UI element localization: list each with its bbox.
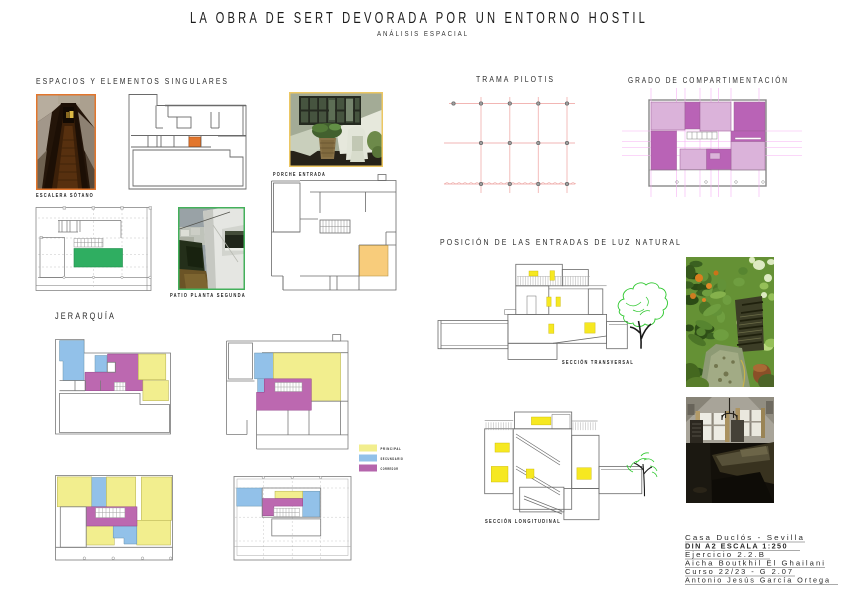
svg-text:CORREDOR: CORREDOR <box>381 466 399 471</box>
svg-text:SECCIÓN TRANSVERSAL: SECCIÓN TRANSVERSAL <box>562 358 634 366</box>
svg-text:SECCIÓN LONGITUDINAL: SECCIÓN LONGITUDINAL <box>485 517 561 525</box>
svg-text:SECUNDARIO: SECUNDARIO <box>381 456 404 461</box>
svg-text:PORCHE ENTRADA: PORCHE ENTRADA <box>273 172 326 178</box>
svg-text:ESPACIOS Y ELEMENTOS SINGULARE: ESPACIOS Y ELEMENTOS SINGULARES <box>36 77 229 86</box>
svg-text:ANÁLISIS ESPACIAL: ANÁLISIS ESPACIAL <box>377 29 469 38</box>
svg-text:GRADO DE COMPARTIMENTACIÓN: GRADO DE COMPARTIMENTACIÓN <box>628 76 789 85</box>
svg-text:TRAMA PILOTIS: TRAMA PILOTIS <box>476 75 555 84</box>
svg-text:Antonio Jesús García Ortega: Antonio Jesús García Ortega <box>685 576 831 585</box>
svg-text:PRINCIPAL: PRINCIPAL <box>381 446 402 451</box>
svg-text:PATIO PLANTA SEGUNDA: PATIO PLANTA SEGUNDA <box>170 293 246 299</box>
svg-text:JERARQUÍA: JERARQUÍA <box>55 311 116 321</box>
svg-text:POSICIÓN DE LAS ENTRADAS DE LU: POSICIÓN DE LAS ENTRADAS DE LUZ NATURAL <box>440 238 682 247</box>
svg-text:ESCALERA SÓTANO: ESCALERA SÓTANO <box>36 191 94 199</box>
svg-text:LA OBRA DE SERT DEVORADA POR U: LA OBRA DE SERT DEVORADA POR UN ENTORNO … <box>190 10 648 27</box>
